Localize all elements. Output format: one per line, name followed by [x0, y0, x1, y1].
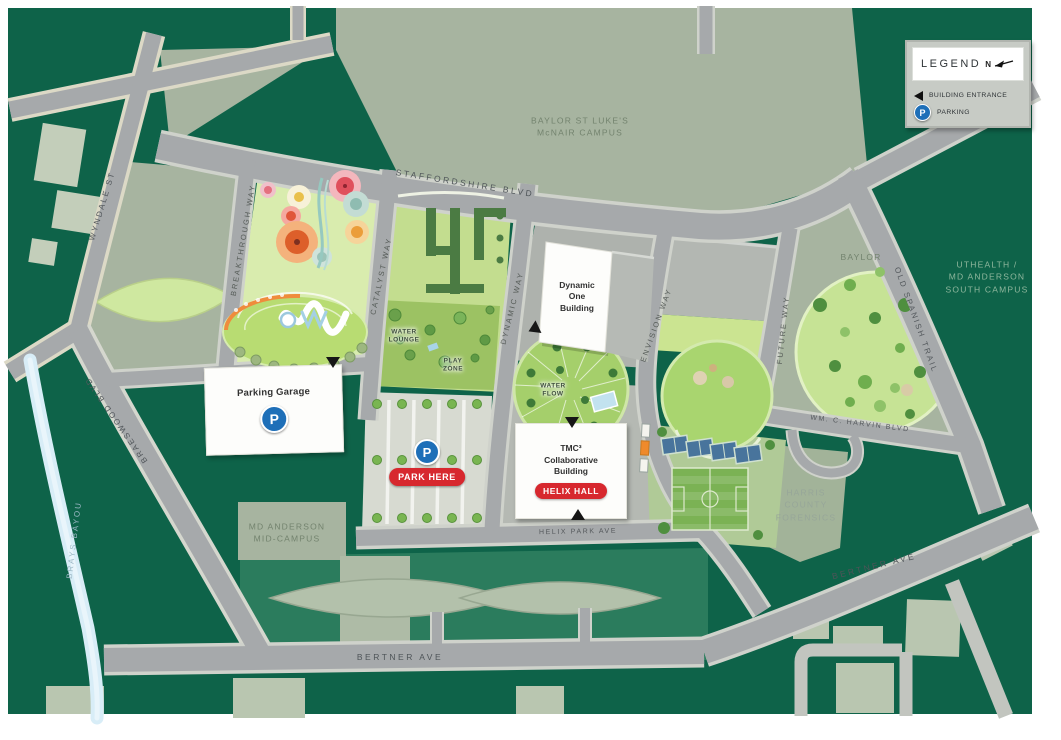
area-label-baylor-st-lukes: BAYLOR ST LUKE'SMcNAIR CAMPUS: [531, 115, 629, 140]
soccer-field: [672, 468, 748, 530]
legend-header: LEGEND N: [912, 47, 1024, 81]
parking-garage-building: Parking Garage P: [204, 364, 344, 456]
park-here-badge: PARK HERE: [389, 468, 465, 486]
area-label-baylor: BAYLOR: [840, 251, 881, 263]
tmc3-label: TMC³CollaborativeBuilding: [544, 443, 598, 477]
area-label-uthealth: UTHEALTH /MD ANDERSONSOUTH CAMPUS: [946, 259, 1029, 296]
road-helix-park-ave: [356, 530, 702, 538]
entrance-arrow-icon: [914, 91, 923, 101]
feature-label-water-lounge: WATERLOUNGE: [389, 329, 420, 346]
feature-label-play-zone: PLAYZONE: [443, 358, 463, 375]
road-label-helix-park-ave: HELIX PARK AVE: [539, 528, 617, 536]
legend-box: LEGEND N BUILDING ENTRANCE P PARKING: [905, 40, 1031, 128]
legend-entry-parking: P PARKING: [912, 104, 1024, 121]
campus-map-page: { "legend": { "title": "LEGEND", "north"…: [0, 0, 1061, 740]
north-arrow-icon: [993, 58, 1015, 70]
entrance-arrow-icon: [571, 509, 585, 520]
road-label-bertner-south: BERTNER AVE: [357, 652, 443, 662]
tmc3-collaborative-building: TMC³CollaborativeBuilding HELIX HALL: [515, 423, 627, 519]
helix-hall-badge: HELIX HALL: [535, 483, 607, 499]
legend-title: LEGEND: [921, 58, 981, 70]
entrance-arrow-icon: [326, 357, 340, 368]
north-indicator: N: [985, 58, 1015, 70]
area-label-harris-forensics: HARRISCOUNTYFORENSICS: [776, 487, 836, 524]
area-label-md-anderson-mid: MD ANDERSONMID-CAMPUS: [249, 521, 326, 546]
feature-label-water-flow: WATERFLOW: [540, 383, 566, 400]
entrance-arrow-icon: [565, 417, 579, 428]
parking-icon: P: [260, 405, 289, 434]
building-label-dynamic-one: DynamicOneBuilding: [559, 280, 594, 314]
map-canvas: [0, 0, 1061, 740]
parking-garage-label: Parking Garage: [237, 386, 310, 399]
parking-icon: P: [414, 439, 440, 465]
legend-entry-building-entrance: BUILDING ENTRANCE: [912, 87, 1024, 104]
parking-icon: P: [914, 104, 931, 121]
dynamic-one-building-shape: [539, 242, 654, 362]
